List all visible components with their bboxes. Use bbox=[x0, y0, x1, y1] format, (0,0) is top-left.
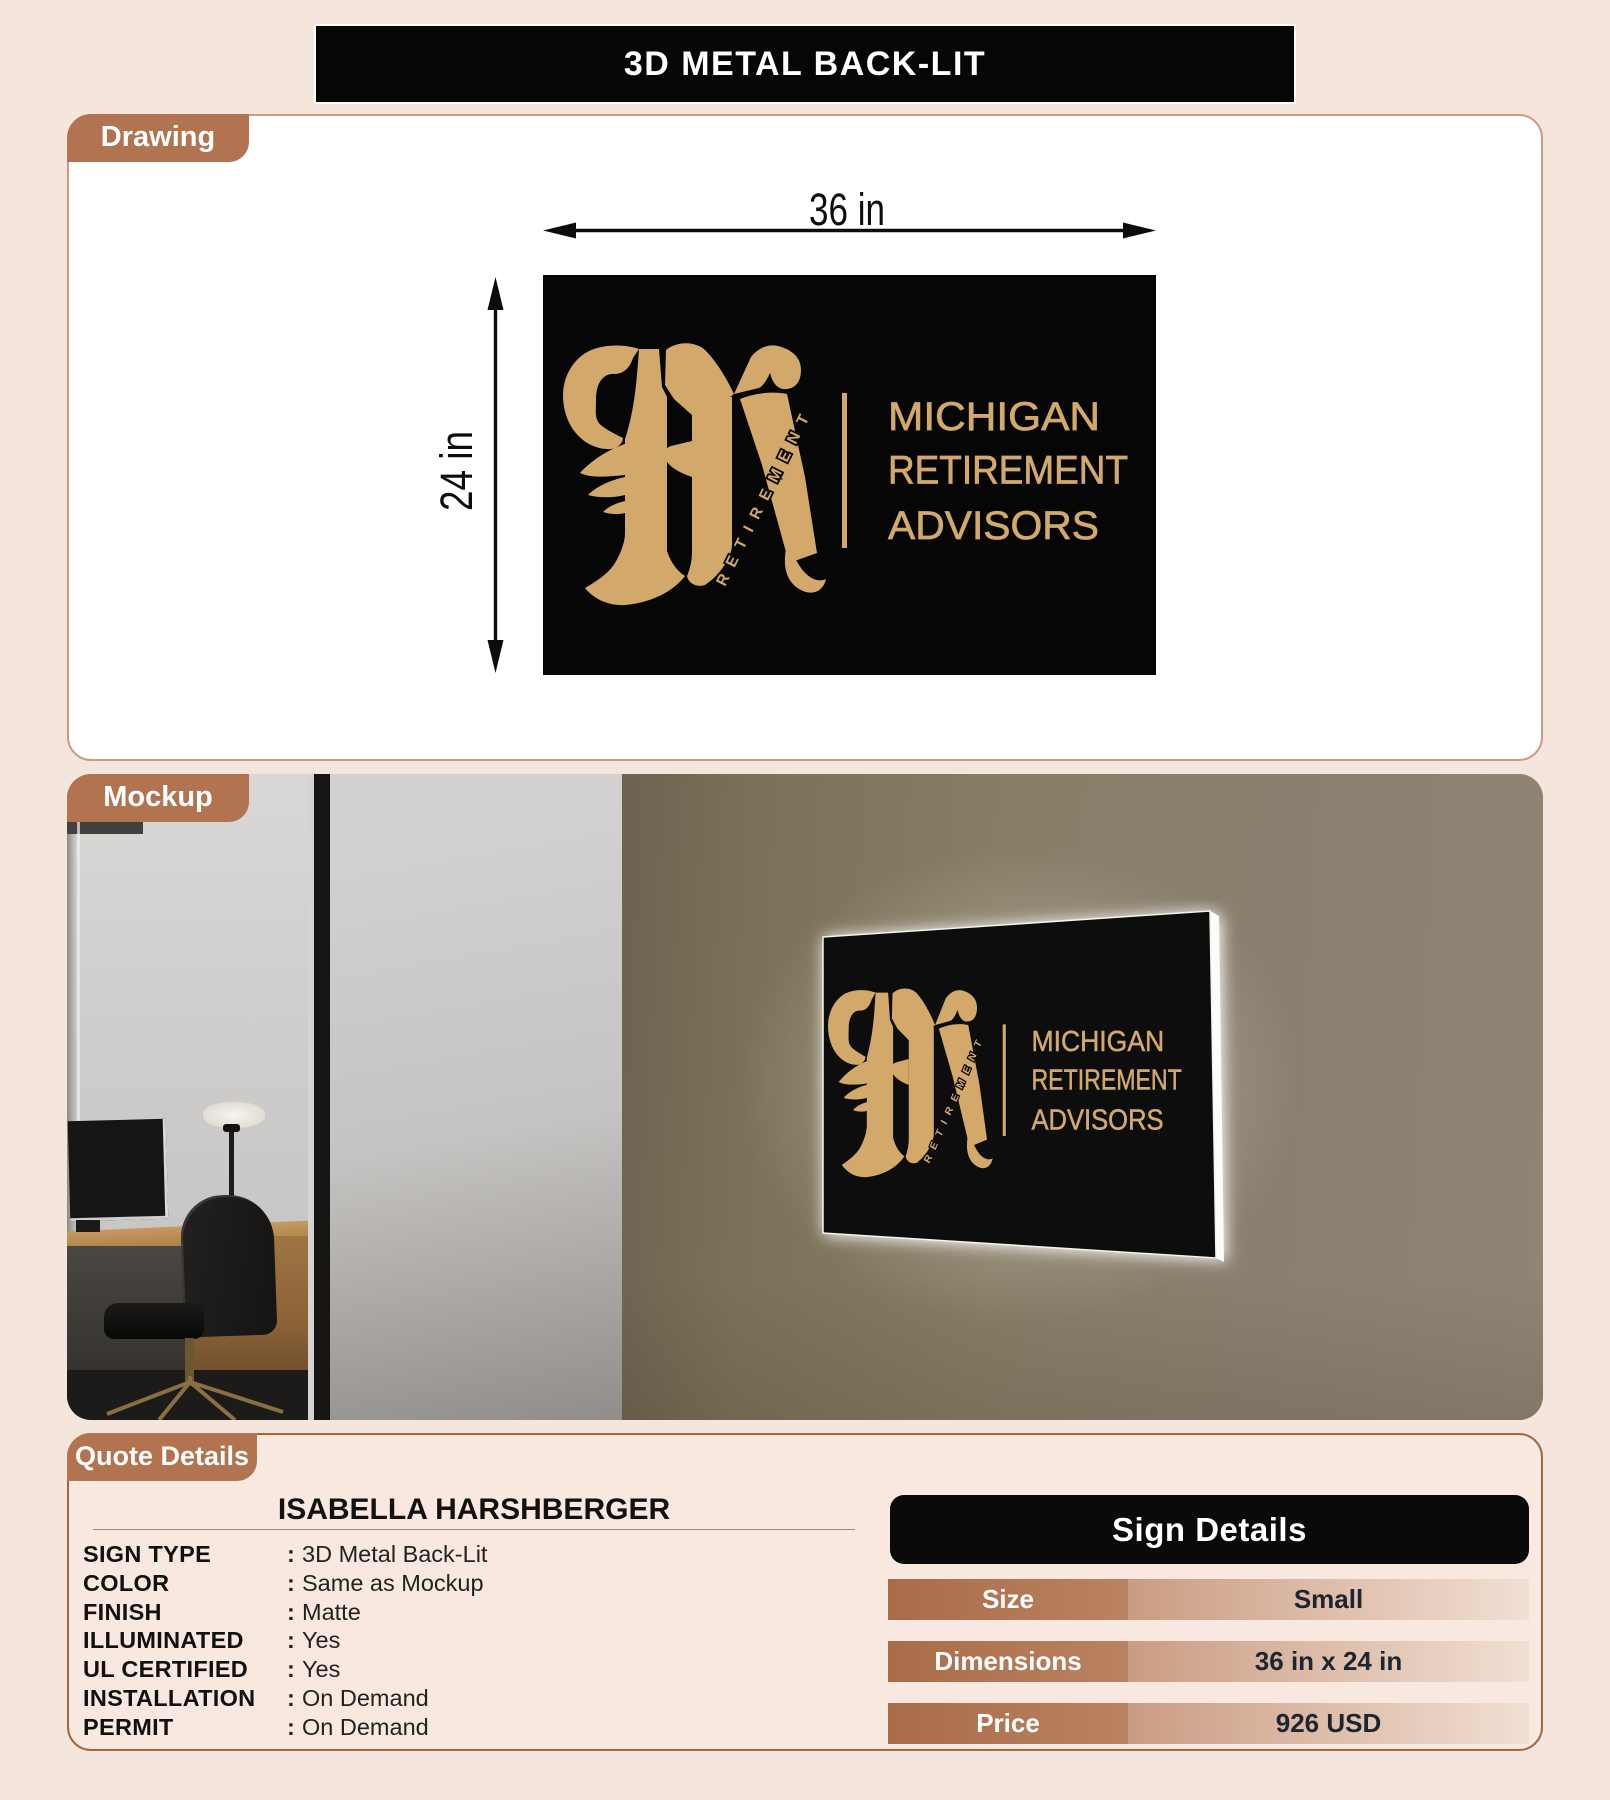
svg-text:24 in: 24 in bbox=[431, 431, 482, 511]
svg-text:36 in: 36 in bbox=[809, 184, 885, 235]
